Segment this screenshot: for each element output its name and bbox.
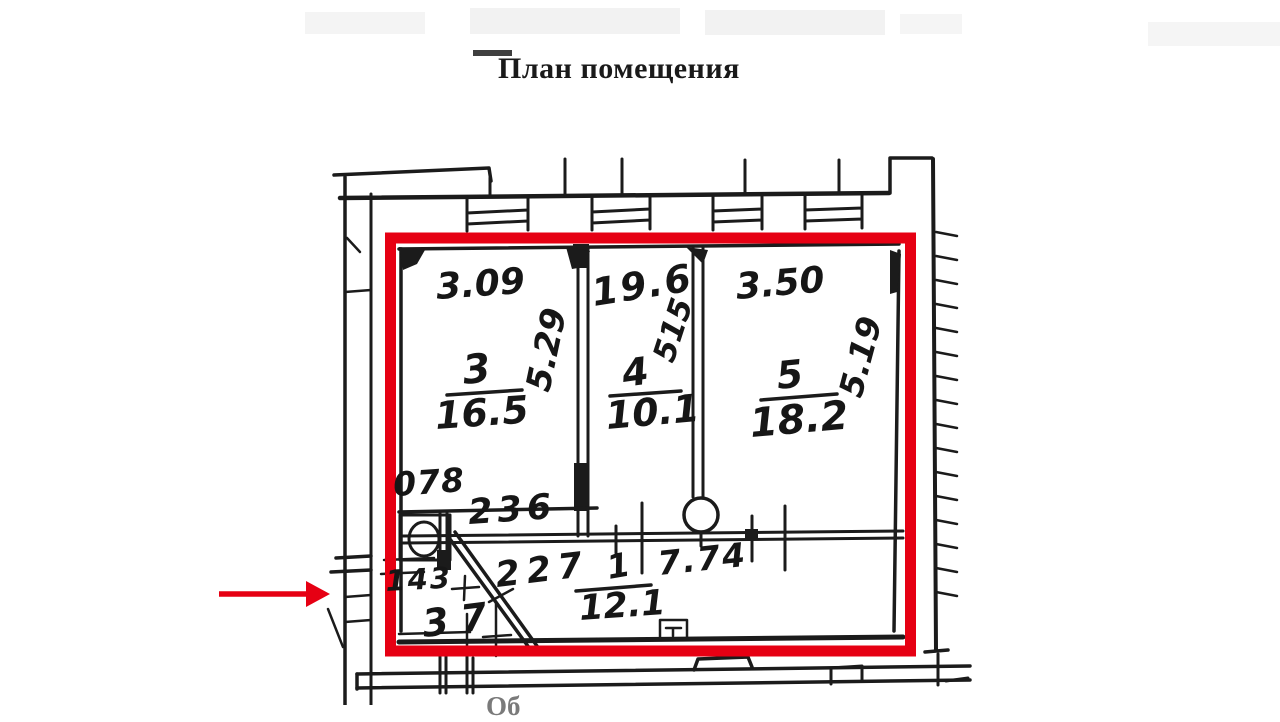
room5-label: 5 18.2 (748, 351, 850, 447)
dim-corridor: 7.74 (656, 535, 749, 583)
column-circle-symbol (684, 498, 718, 532)
dim-hall-a: 236 (467, 487, 558, 533)
room1-area: 12.1 (578, 583, 667, 629)
room4-label: 4 10.1 (604, 349, 701, 438)
lower-walls (357, 654, 970, 693)
pointer-arrow-head (306, 581, 330, 607)
room3-label: 3 16.5 (434, 345, 531, 438)
room5-area: 18.2 (748, 393, 850, 447)
wall-hatching (936, 232, 957, 596)
room1-label: 1 12.1 (576, 544, 667, 628)
dim-side-room5: 5.19 (831, 312, 890, 401)
pointer-arrow (219, 581, 330, 607)
room5-number: 5 (774, 351, 805, 398)
dim-side-room3: 5.29 (519, 304, 576, 394)
dim-wc: 078 (392, 460, 466, 504)
caption-partial-text: Об (486, 691, 521, 722)
room1-number: 1 (604, 544, 633, 586)
dim-top-room5: 3.50 (734, 259, 826, 308)
room3-area: 16.5 (434, 388, 531, 438)
room4-area: 10.1 (604, 386, 701, 438)
dim-hall-c: 143 (385, 561, 453, 598)
dim-hall-b: 227 (493, 545, 591, 596)
room3-number: 3 (460, 345, 492, 394)
scan-artifacts (305, 8, 1280, 56)
dim-hall-d: 37 (420, 593, 502, 646)
window-symbols (467, 194, 862, 231)
dim-top-room3: 3.09 (435, 261, 526, 308)
floor-plan-drawing: 3.09 19.6 3.50 5.29 515 5.19 078 236 227… (0, 0, 1280, 705)
